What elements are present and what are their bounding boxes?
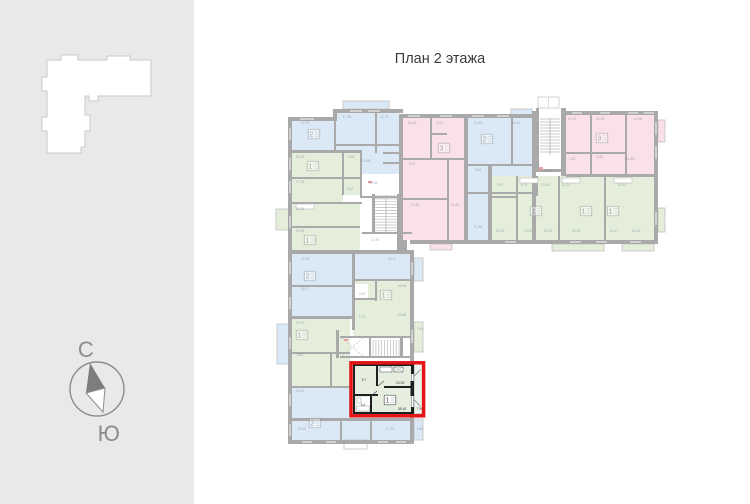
svg-text:2: 2 bbox=[310, 421, 314, 428]
svg-text:4.63: 4.63 bbox=[359, 292, 366, 296]
svg-text:4.84: 4.84 bbox=[297, 353, 304, 357]
svg-text:25.78: 25.78 bbox=[301, 257, 310, 261]
svg-text:12.06: 12.06 bbox=[634, 117, 643, 121]
svg-text:1: 1 bbox=[581, 209, 585, 216]
svg-text:2: 2 bbox=[482, 137, 486, 144]
svg-text:1: 1 bbox=[531, 209, 535, 216]
svg-text:13.58: 13.58 bbox=[296, 207, 305, 211]
svg-text:20.25: 20.25 bbox=[572, 229, 581, 233]
svg-text:9.75: 9.75 bbox=[359, 315, 366, 319]
svg-text:Ю: Ю bbox=[98, 421, 120, 446]
svg-text:16.47: 16.47 bbox=[296, 389, 305, 393]
svg-text:13.92: 13.92 bbox=[568, 117, 577, 121]
svg-text:10.58: 10.58 bbox=[369, 181, 378, 185]
svg-text:36.48: 36.48 bbox=[398, 284, 407, 288]
svg-text:11.55: 11.55 bbox=[371, 238, 379, 242]
svg-text:38.48: 38.48 bbox=[398, 407, 407, 411]
svg-text:19.02: 19.02 bbox=[544, 229, 553, 233]
svg-text:3.02: 3.02 bbox=[409, 162, 416, 166]
svg-text:11.12: 11.12 bbox=[562, 183, 570, 187]
svg-text:23.96: 23.96 bbox=[296, 229, 305, 233]
svg-text:7.64: 7.64 bbox=[417, 327, 424, 331]
svg-text:3: 3 bbox=[597, 136, 601, 143]
svg-text:47.85: 47.85 bbox=[474, 225, 483, 229]
svg-text:13.02: 13.02 bbox=[524, 229, 533, 233]
svg-text:15.44: 15.44 bbox=[632, 229, 641, 233]
svg-text:14.17: 14.17 bbox=[610, 229, 619, 233]
svg-text:24.62: 24.62 bbox=[298, 427, 307, 431]
svg-text:План 2 этажа: План 2 этажа bbox=[395, 51, 486, 67]
svg-text:23.05: 23.05 bbox=[396, 381, 405, 385]
svg-text:10.43: 10.43 bbox=[496, 229, 505, 233]
svg-text:1: 1 bbox=[305, 238, 309, 245]
svg-text:1.83: 1.83 bbox=[569, 157, 576, 161]
svg-text:1: 1 bbox=[381, 293, 385, 300]
svg-text:3: 3 bbox=[439, 146, 443, 153]
svg-text:2: 2 bbox=[305, 274, 309, 281]
svg-text:С: С bbox=[78, 337, 94, 362]
svg-text:16.75: 16.75 bbox=[301, 121, 310, 125]
svg-text:9.48: 9.48 bbox=[475, 168, 482, 172]
svg-text:20.98: 20.98 bbox=[411, 203, 420, 207]
svg-text:10.97: 10.97 bbox=[296, 321, 305, 325]
svg-text:17.16: 17.16 bbox=[296, 180, 305, 184]
svg-text:13.23: 13.23 bbox=[544, 169, 553, 173]
svg-text:9.38: 9.38 bbox=[597, 155, 604, 159]
svg-text:4.6: 4.6 bbox=[361, 403, 366, 407]
svg-text:13.76: 13.76 bbox=[380, 115, 389, 119]
svg-text:1: 1 bbox=[608, 209, 612, 216]
svg-text:5.78: 5.78 bbox=[521, 183, 528, 187]
svg-text:5.02: 5.02 bbox=[347, 187, 354, 191]
svg-text:14.69: 14.69 bbox=[626, 157, 635, 161]
svg-text:14.51: 14.51 bbox=[512, 121, 521, 125]
svg-text:1: 1 bbox=[297, 333, 301, 340]
svg-text:5.61: 5.61 bbox=[437, 121, 444, 125]
svg-text:9.7: 9.7 bbox=[362, 378, 367, 382]
svg-text:23.88: 23.88 bbox=[398, 313, 407, 317]
svg-text:14.29: 14.29 bbox=[451, 203, 460, 207]
svg-text:20.45: 20.45 bbox=[474, 121, 483, 125]
svg-text:3.07: 3.07 bbox=[497, 183, 504, 187]
svg-text:17.19: 17.19 bbox=[386, 427, 395, 431]
svg-text:13.14: 13.14 bbox=[618, 183, 627, 187]
svg-text:1: 1 bbox=[385, 398, 389, 405]
svg-text:1: 1 bbox=[308, 164, 312, 171]
svg-text:16.45: 16.45 bbox=[408, 121, 417, 125]
svg-text:23.96: 23.96 bbox=[296, 155, 305, 159]
svg-text:5.65: 5.65 bbox=[417, 427, 424, 431]
svg-text:13.18: 13.18 bbox=[541, 183, 550, 187]
svg-text:18.27: 18.27 bbox=[301, 287, 310, 291]
svg-text:2: 2 bbox=[309, 132, 313, 139]
svg-text:13.98: 13.98 bbox=[362, 159, 371, 163]
svg-text:4.56: 4.56 bbox=[348, 155, 355, 159]
svg-text:16.17: 16.17 bbox=[388, 257, 397, 261]
svg-text:17.58: 17.58 bbox=[343, 115, 352, 119]
svg-text:16.09: 16.09 bbox=[596, 117, 605, 121]
